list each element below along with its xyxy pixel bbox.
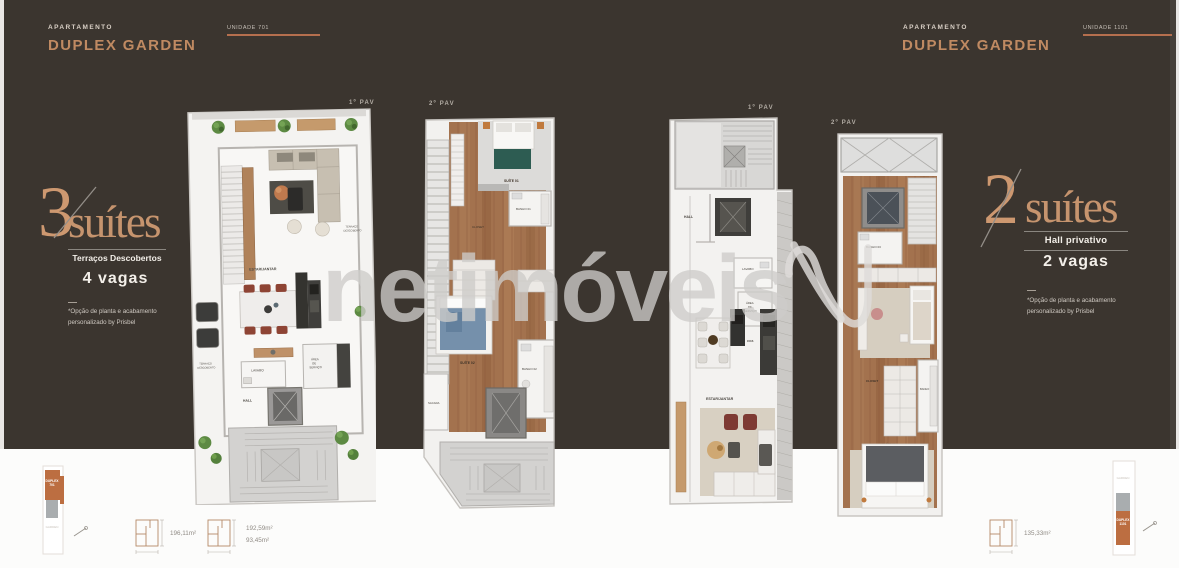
svg-text:ESTAR/JANTAR: ESTAR/JANTAR bbox=[706, 397, 734, 401]
svg-text:CLOSET: CLOSET bbox=[866, 379, 878, 383]
svg-text:GARDEN: GARDEN bbox=[1117, 476, 1130, 480]
svg-text:93,45m²: 93,45m² bbox=[246, 537, 269, 544]
svg-text:1101: 1101 bbox=[1120, 522, 1127, 526]
svg-text:135,33m²: 135,33m² bbox=[1024, 530, 1051, 537]
svg-text:BANHO: BANHO bbox=[920, 387, 929, 391]
svg-text:GARDEN: GARDEN bbox=[46, 525, 59, 529]
svg-text:SACADA: SACADA bbox=[428, 401, 440, 405]
svg-text:DESCOBERTO: DESCOBERTO bbox=[343, 228, 361, 232]
svg-text:BANHO 02: BANHO 02 bbox=[522, 367, 537, 371]
svg-text:SUÍTE 01: SUÍTE 01 bbox=[504, 178, 519, 183]
svg-text:TERRAÇO: TERRAÇO bbox=[345, 224, 358, 228]
svg-text:HALL: HALL bbox=[684, 215, 693, 219]
svg-text:ESTAR/JANTAR: ESTAR/JANTAR bbox=[249, 267, 277, 272]
svg-text:192,59m²: 192,59m² bbox=[246, 525, 273, 532]
svg-text:LAVABO: LAVABO bbox=[251, 368, 264, 372]
svg-text:701: 701 bbox=[49, 483, 55, 487]
svg-text:HALL: HALL bbox=[243, 399, 252, 403]
svg-text:DESCOBERTO: DESCOBERTO bbox=[197, 365, 215, 369]
svg-text:CLOSET: CLOSET bbox=[472, 225, 484, 229]
svg-text:196,11m²: 196,11m² bbox=[170, 530, 196, 537]
svg-text:TERRAÇO: TERRAÇO bbox=[199, 361, 212, 365]
svg-text:SUÍTE 02: SUÍTE 02 bbox=[460, 360, 475, 365]
svg-text:SERVIÇO: SERVIÇO bbox=[309, 365, 322, 369]
svg-text:BANHO 01: BANHO 01 bbox=[516, 207, 531, 211]
